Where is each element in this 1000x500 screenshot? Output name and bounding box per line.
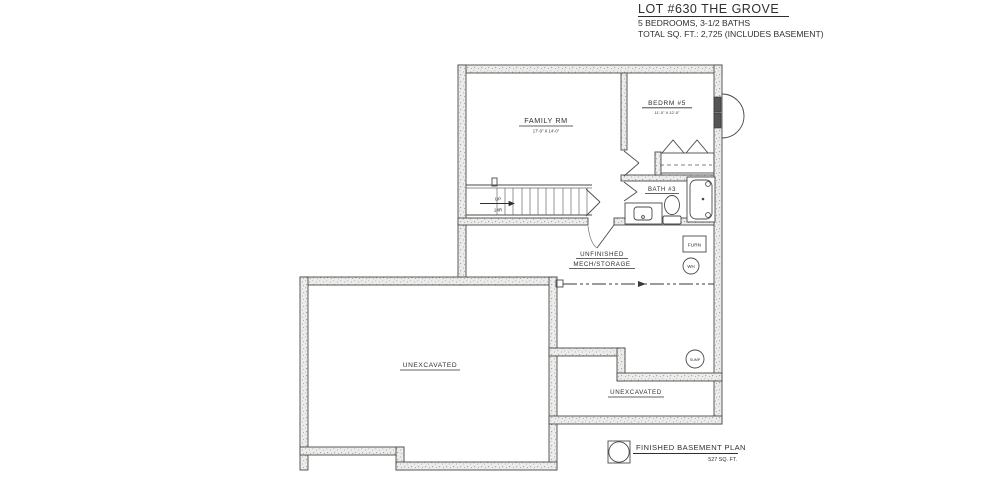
plan-caption: FINISHED BASEMENT PLAN 527 SQ. FT. xyxy=(608,441,746,463)
plan-area-label: 527 SQ. FT. xyxy=(708,457,737,463)
bedroom5-label: BEDRM #5 xyxy=(648,100,686,107)
water-heater: WH xyxy=(683,258,699,274)
stairs-risers-label: 14R xyxy=(494,208,503,213)
furnace: FURN xyxy=(683,236,706,252)
water-heater-label: WH xyxy=(687,264,694,269)
furnace-label: FURN xyxy=(688,243,702,249)
line-arrow-icon xyxy=(638,281,646,287)
mechanical-equipment: FURN WH SUMP xyxy=(683,236,706,368)
total-sqft-line: TOTAL SQ. FT.: 2,725 (INCLUDES BASEMENT) xyxy=(638,29,824,39)
wall-lower-unexcavated-top-right xyxy=(617,373,722,381)
sump-label: SUMP xyxy=(690,358,701,362)
shower xyxy=(687,177,715,222)
vanity-sink xyxy=(625,203,662,224)
wall-unexcavated-top xyxy=(300,277,557,285)
window-sash-icon xyxy=(714,113,721,128)
wall-unexcavated-bottom-right xyxy=(396,462,557,470)
wall-unexcavated-bottom-left xyxy=(300,447,404,455)
floor-plan-page: UP 14R xyxy=(0,0,1000,500)
mech-storage-label-line2: MECH/STORAGE xyxy=(573,261,630,268)
wall-left-upper xyxy=(458,65,466,285)
bath-door-marks xyxy=(624,182,637,201)
mech-storage-label-line1: UNFINISHED xyxy=(580,251,624,258)
wall-lower-unexcavated-top-left xyxy=(549,348,625,356)
toilet xyxy=(663,196,681,225)
bedroom5-dims: 11'-0" X 12'-0" xyxy=(655,110,681,115)
lot-title: LOT #630 THE GROVE xyxy=(638,2,779,16)
closet-bifold-doors xyxy=(662,140,708,153)
foundation-walls xyxy=(300,65,722,470)
bath3-label: BATH #3 xyxy=(648,187,676,193)
stair-door-marks xyxy=(586,189,600,216)
wall-lower-unexcavated-bottom xyxy=(549,416,722,424)
basement-floor-plan-drawing: UP 14R xyxy=(0,0,1000,500)
wall-family-bedroom-divider xyxy=(621,73,627,150)
stair-treads xyxy=(497,188,587,215)
title-block: LOT #630 THE GROVE 5 BEDROOMS, 3-1/2 BAT… xyxy=(638,2,824,39)
plan-name-label: FINISHED BASEMENT PLAN xyxy=(636,443,746,452)
bedroom-closet xyxy=(655,140,714,175)
room-labels: FAMILY RM 17'-0" X 14'-0" BEDRM #5 11'-0… xyxy=(400,100,692,397)
family-room-dims: 17'-0" X 14'-0" xyxy=(533,129,560,134)
window-sash-icon xyxy=(714,97,721,112)
wall-unexcavated-right xyxy=(549,277,557,470)
bedroom-door-marks xyxy=(624,151,639,176)
doors xyxy=(588,151,639,248)
bedrooms-baths-line: 5 BEDROOMS, 3-1/2 BATHS xyxy=(638,18,750,28)
sump-pump: SUMP xyxy=(686,350,704,368)
stairs: UP 14R xyxy=(466,178,600,216)
edge-above-line xyxy=(556,280,714,287)
wall-finished-south-left xyxy=(458,218,588,225)
family-room-label: FAMILY RM xyxy=(524,116,567,125)
north-symbol-icon xyxy=(608,441,630,463)
wall-top xyxy=(458,65,722,73)
stairs-up-label: UP xyxy=(495,197,501,202)
wall-unexcavated-left xyxy=(300,277,308,470)
bath-fixtures xyxy=(625,177,715,224)
window-well-arc xyxy=(722,94,744,138)
unexcavated-main-label: UNEXCAVATED xyxy=(403,362,458,369)
mech-door xyxy=(588,225,614,248)
closet-jamb xyxy=(655,152,661,175)
unexcavated-small-label: UNEXCAVATED xyxy=(610,389,662,396)
